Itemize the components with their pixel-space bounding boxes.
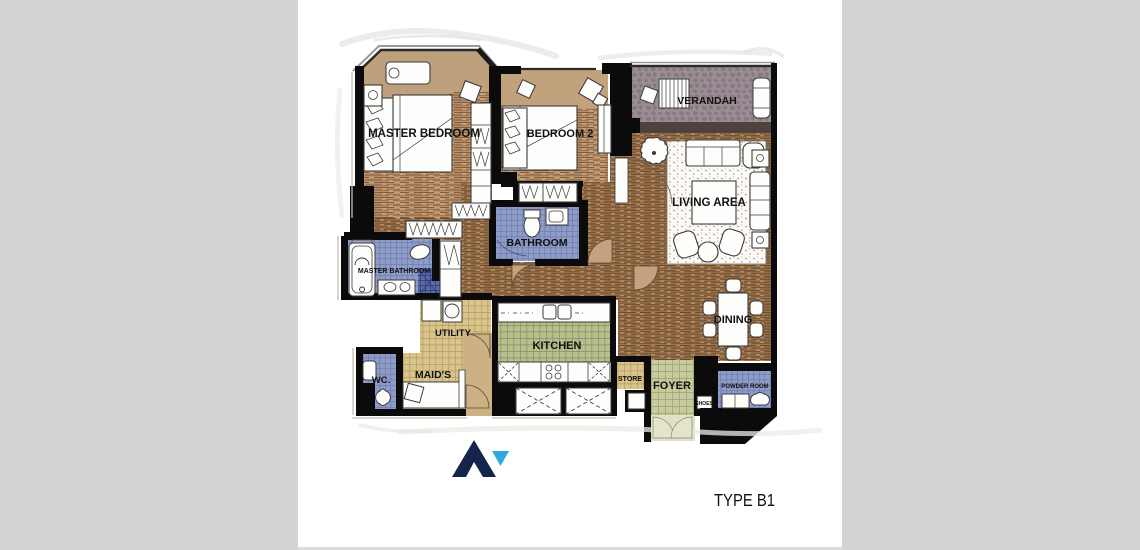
svg-text:FOYER: FOYER	[653, 380, 691, 392]
svg-text:MASTER BEDROOM: MASTER BEDROOM	[368, 128, 480, 140]
svg-text:KITCHEN: KITCHEN	[533, 340, 582, 352]
svg-text:UTILITY: UTILITY	[435, 328, 472, 339]
svg-text:BATHROOM: BATHROOM	[506, 237, 567, 249]
svg-text:LIVING AREA: LIVING AREA	[672, 197, 746, 209]
svg-text:POWDER ROOM: POWDER ROOM	[721, 384, 768, 390]
svg-text:MASTER BATHROOM: MASTER BATHROOM	[358, 268, 430, 275]
svg-text:STORE: STORE	[618, 376, 642, 383]
svg-text:DINING: DINING	[714, 314, 753, 326]
svg-text:VERANDAH: VERANDAH	[677, 95, 737, 107]
svg-text:WC.: WC.	[372, 375, 390, 386]
svg-text:SHOES: SHOES	[695, 401, 713, 407]
svg-text:MAID'S: MAID'S	[415, 369, 451, 381]
svg-text:TYPE B1: TYPE B1	[714, 490, 775, 510]
svg-text:BEDROOM 2: BEDROOM 2	[527, 128, 594, 140]
